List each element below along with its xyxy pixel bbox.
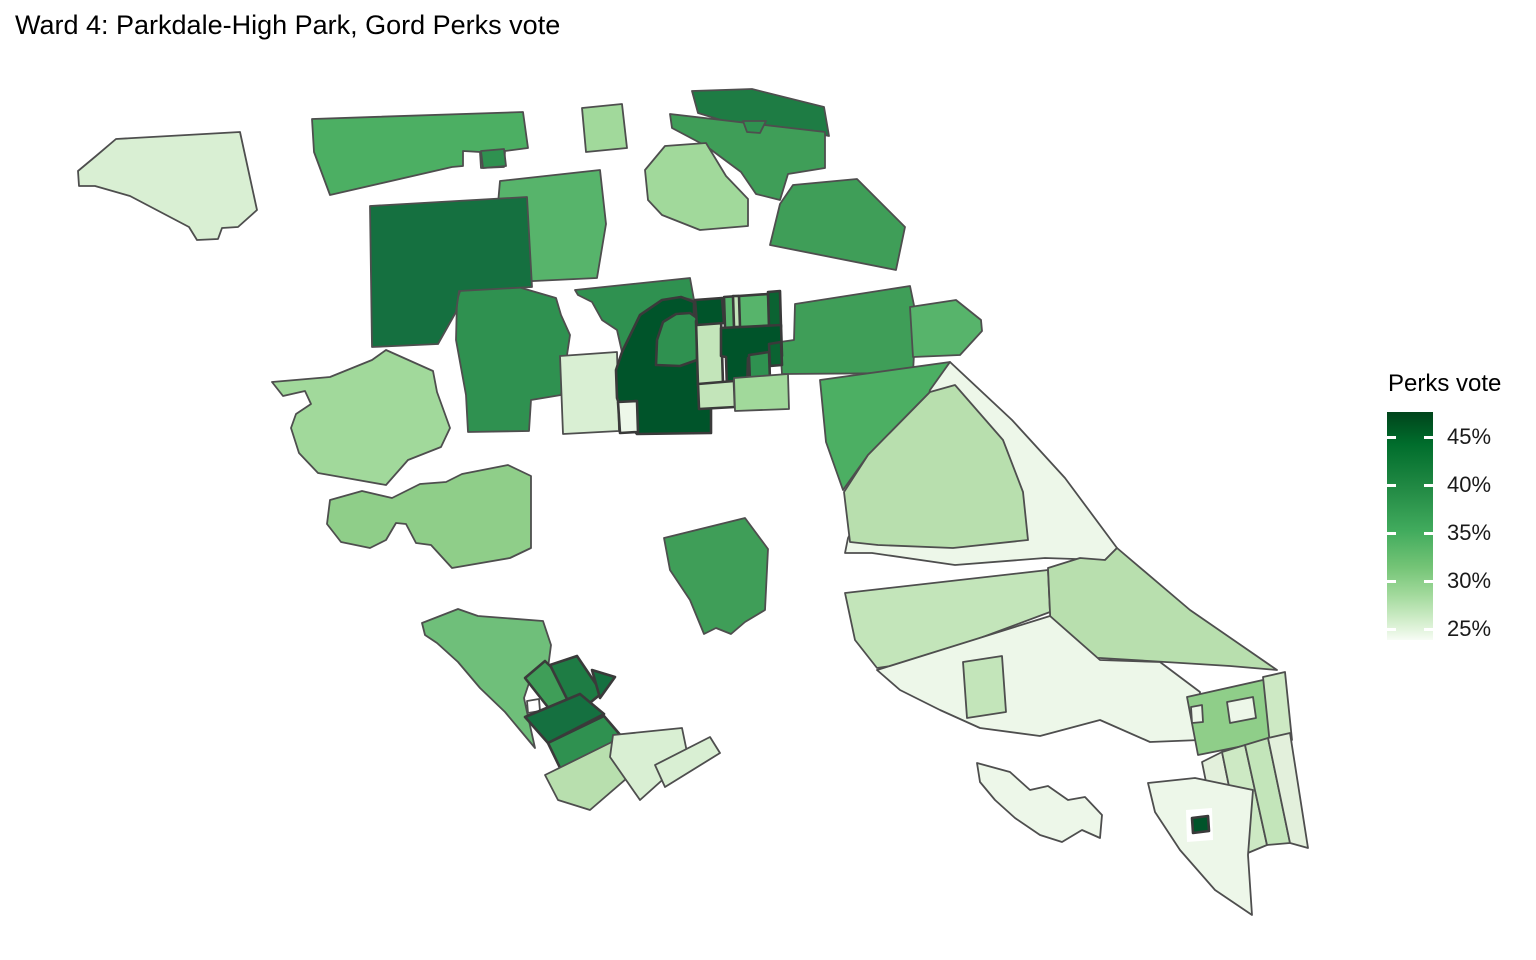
legend-tick-label: 45% bbox=[1447, 424, 1491, 450]
map-region-cluster-pale-bl: cluster-pale-bl: ~25% bbox=[618, 401, 638, 433]
legend-tick-label: 25% bbox=[1447, 616, 1491, 642]
legend-tick-mark bbox=[1387, 628, 1396, 631]
choropleth-map: nw-blob: ~27%top-strip-west: ~36%top-str… bbox=[0, 0, 1536, 960]
map-region-block-ne-2: block-ne-2: ~38% bbox=[780, 286, 916, 374]
map-region-se-small-rect: se-small-rect: ~29% bbox=[963, 656, 1006, 718]
map-region-cluster-lm-br: cluster-lm-br: ~31% bbox=[734, 374, 789, 411]
map-region-top-strip-square: top-strip-square: ~40% bbox=[481, 149, 506, 168]
legend-tick-mark bbox=[1387, 484, 1396, 487]
map-region-cluster-light-bm: cluster-light-bm: ~29% bbox=[698, 381, 735, 409]
legend-tick-mark bbox=[1387, 436, 1396, 439]
legend-tick-mark bbox=[1424, 580, 1433, 583]
map-region-west-blob-1: west-blob-1: ~31% bbox=[272, 350, 450, 485]
map-region-block-ne-1: block-ne-1: ~38% bbox=[770, 179, 905, 270]
map-region-cross-centre: cross-centre: ~40% bbox=[456, 271, 570, 432]
legend-tick-mark bbox=[1424, 436, 1433, 439]
map-region-se-hook-sliver: se-hook-sliver: ~25% bbox=[977, 763, 1102, 842]
legend-tick-mark bbox=[1424, 484, 1433, 487]
map-region-wing-ne: wing-ne: ~35% bbox=[910, 300, 982, 357]
legend-tick-mark bbox=[1424, 628, 1433, 631]
map-region-peninsula-dark: peninsula-dark: ~46% bbox=[1192, 816, 1209, 833]
legend: Perks vote 45%40%35%30%25% bbox=[1387, 370, 1527, 640]
map-region-light-quad-top: light-quad-top: ~31% bbox=[582, 104, 627, 152]
legend-tick-mark bbox=[1424, 532, 1433, 535]
map-region-pale-strip-mid: pale-strip-mid: ~27% bbox=[560, 352, 619, 434]
legend-tick-mark bbox=[1387, 580, 1396, 583]
map-region-cluster-dark-sm: cluster-dark-sm: ~45% bbox=[769, 342, 782, 366]
legend-tick-mark bbox=[1387, 532, 1396, 535]
legend-tick-label: 40% bbox=[1447, 472, 1491, 498]
legend-colorbar bbox=[1387, 412, 1433, 640]
map-region-cluster-light-col: cluster-light-col: ~29% bbox=[696, 319, 723, 386]
map-region-pentagon-mid: pentagon-mid: ~38% bbox=[664, 518, 768, 634]
map-region-se-block-hole: se-block-hole: ~25% bbox=[1227, 697, 1256, 723]
legend-colorbar-wrap: 45%40%35%30%25% bbox=[1387, 412, 1433, 640]
legend-tick-label: 35% bbox=[1447, 520, 1491, 546]
map-region-cluster-sliver: cluster-sliver: ~29% bbox=[733, 296, 740, 327]
legend-tick-label: 30% bbox=[1447, 568, 1491, 594]
legend-title: Perks vote bbox=[1388, 370, 1527, 398]
map-region-nw-blob: nw-blob: ~27% bbox=[78, 132, 257, 240]
map-region-cluster-dark-sq: cluster-dark-sq: ~46% bbox=[695, 298, 724, 325]
map-region-peninsula: peninsula: ~25% bbox=[1148, 778, 1253, 915]
map-region-cluster-dark-r: cluster-dark-r: ~45% bbox=[768, 291, 781, 328]
map-region-se-block-notch: se-block-notch: ~25% bbox=[1191, 705, 1203, 723]
map-region-cluster-med-col: cluster-med-col: ~35% bbox=[724, 294, 770, 328]
